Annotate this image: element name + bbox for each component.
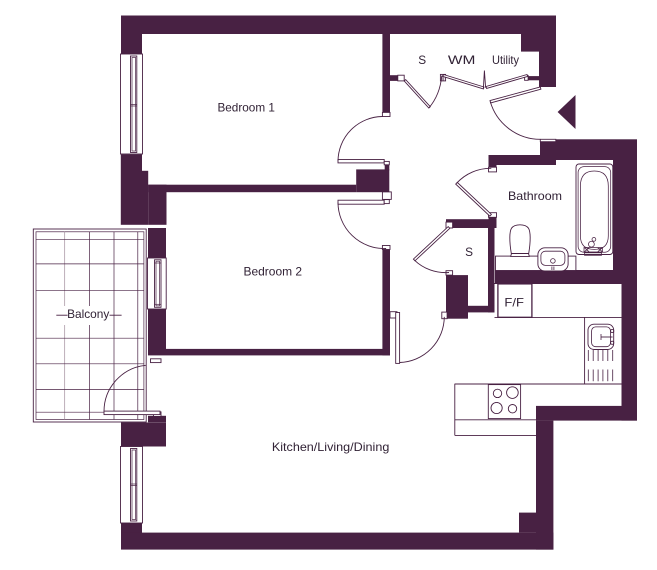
svg-text:Kitchen/Living/Dining: Kitchen/Living/Dining bbox=[272, 440, 390, 454]
svg-text:S: S bbox=[418, 53, 426, 67]
svg-text:S: S bbox=[465, 245, 473, 259]
svg-text:Utility: Utility bbox=[492, 53, 519, 67]
svg-text:F/F: F/F bbox=[504, 295, 524, 309]
svg-text:WM: WM bbox=[448, 53, 476, 67]
svg-text:Bedroom 1: Bedroom 1 bbox=[217, 100, 275, 114]
svg-text:Bedroom 2: Bedroom 2 bbox=[244, 264, 303, 278]
svg-text:Bathroom: Bathroom bbox=[508, 189, 562, 203]
svg-text:Balcony: Balcony bbox=[67, 307, 109, 321]
